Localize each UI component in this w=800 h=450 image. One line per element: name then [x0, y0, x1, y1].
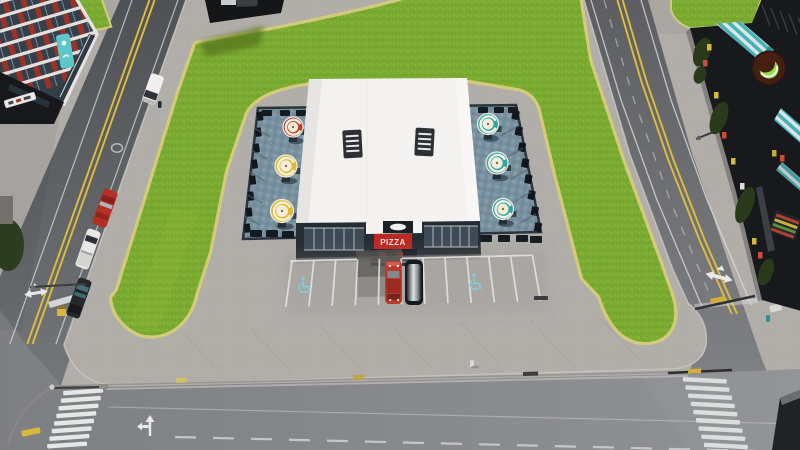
svg-text:PIZZA: PIZZA — [380, 238, 406, 247]
